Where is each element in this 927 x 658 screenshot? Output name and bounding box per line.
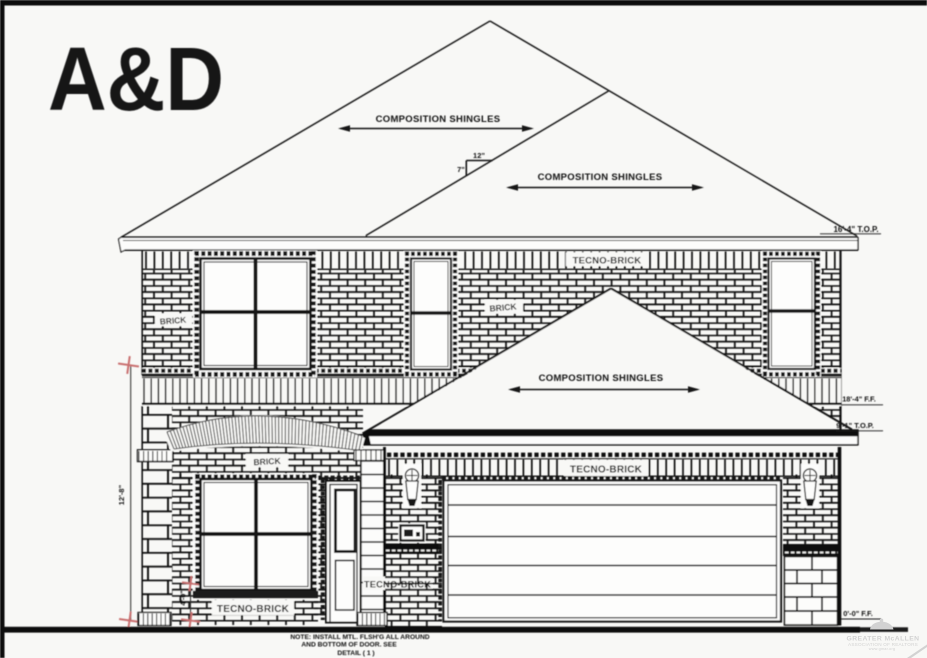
svg-text:0'-0" F.F.: 0'-0" F.F.	[843, 609, 873, 618]
svg-text:TECNO-BRICK: TECNO-BRICK	[217, 604, 290, 615]
svg-text:TECNO-BRICK: TECNO-BRICK	[573, 256, 642, 267]
svg-text:12'-8": 12'-8"	[117, 484, 126, 505]
svg-text:www.gmar.org: www.gmar.org	[869, 647, 895, 651]
svg-text:7": 7"	[457, 165, 465, 174]
svg-text:A&D: A&D	[48, 30, 224, 130]
svg-text:18'-4" F.F.: 18'-4" F.F.	[842, 395, 876, 404]
svg-text:12": 12"	[473, 151, 485, 160]
svg-text:9'-1" T.O.P.: 9'-1" T.O.P.	[836, 421, 874, 430]
svg-text:DETAIL ( 1 ): DETAIL ( 1 )	[337, 650, 374, 657]
svg-text:4'-0": 4'-0"	[181, 590, 188, 605]
svg-text:COMPOSITION SHINGLES: COMPOSITION SHINGLES	[539, 373, 664, 384]
svg-text:16'-4" T.O.P.: 16'-4" T.O.P.	[833, 225, 878, 234]
svg-text:COMPOSITION SHINGLES: COMPOSITION SHINGLES	[376, 114, 501, 125]
svg-text:COMPOSITION SHINGLES: COMPOSITION SHINGLES	[538, 172, 663, 183]
svg-text:TECNO-BRICK: TECNO-BRICK	[570, 465, 643, 476]
svg-text:BRICK: BRICK	[253, 456, 281, 467]
svg-text:NOTE: INSTALL MTL. FLSH'G ALL: NOTE: INSTALL MTL. FLSH'G ALL AROUND	[290, 634, 429, 641]
svg-text:AND BOTTOM OF DOOR. SEE: AND BOTTOM OF DOOR. SEE	[301, 642, 397, 649]
svg-text:BRICK: BRICK	[159, 315, 186, 327]
